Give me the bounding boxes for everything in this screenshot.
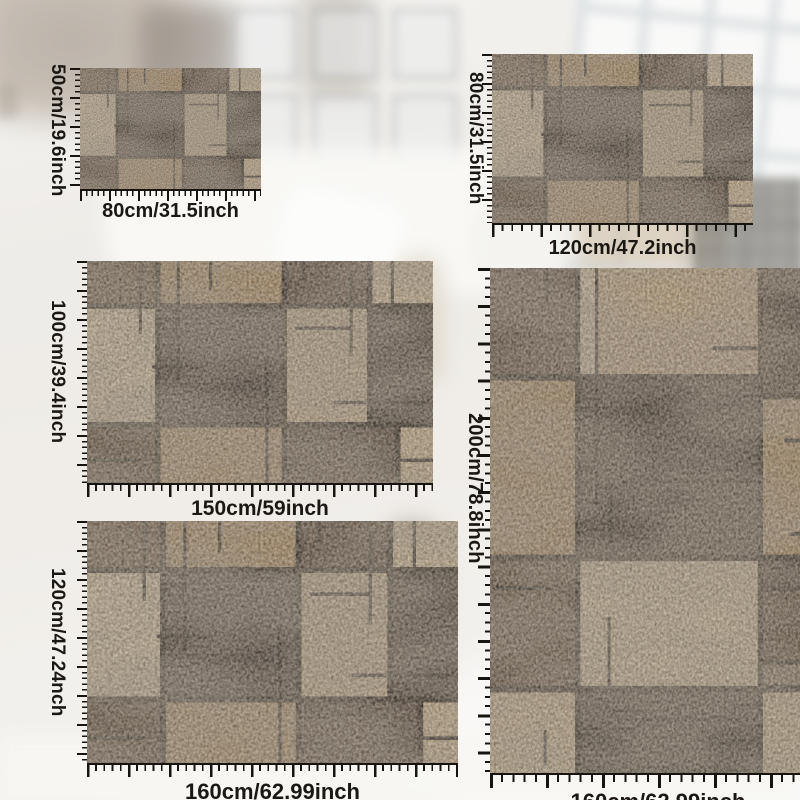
rug-figure-80x120: 80cm/31.5inch 120cm/47.2inch xyxy=(452,16,757,271)
rug-100x150-horizontal-ruler xyxy=(87,483,433,498)
rug-120x160-image xyxy=(87,521,458,763)
rug-120x160-height-label: 120cm/47.24nch xyxy=(42,521,68,763)
rug-200x160-image xyxy=(490,268,800,773)
rug-figure-120x160: 120cm/47.24nch 160cm/62.99inch xyxy=(40,521,465,800)
rug-200x160-width-label: 160cm/62.99inch xyxy=(490,789,800,800)
rug-80x120-width-label: 120cm/47.2inch xyxy=(492,237,753,260)
rug-50x80-width-label: 80cm/31.5inch xyxy=(80,200,261,223)
rug-figure-50x80: 50cm/19.6inch 80cm/31.5inch xyxy=(40,54,275,244)
rug-120x160-horizontal-ruler xyxy=(87,763,458,778)
rug-figure-200x160: 200cm/78.8inch 160cm/62.99inch xyxy=(445,268,800,800)
rug-100x150-width-label: 150cm/59inch xyxy=(87,497,433,521)
rug-100x150-image xyxy=(87,261,433,483)
rug-pattern-svg xyxy=(490,268,800,773)
rug-120x160-width-label: 160cm/62.99inch xyxy=(87,779,458,800)
rug-pattern-svg xyxy=(87,261,433,483)
rug-100x150-height-label: 100cm/39.4inch xyxy=(42,261,68,483)
rug-80x120-image xyxy=(492,54,753,223)
rug-80x120-horizontal-ruler xyxy=(492,223,753,237)
rug-figure-100x150: 100cm/39.4inch 150cm/59inch xyxy=(40,261,440,529)
rug-50x80-height-label: 50cm/19.6inch xyxy=(42,64,68,197)
rug-pattern-svg xyxy=(87,521,458,763)
rug-size-comparison-image: 50cm/19.6inch 80cm/31.5inch 80cm/31.5inc… xyxy=(0,0,800,800)
rug-200x160-horizontal-ruler xyxy=(490,773,800,789)
rug-pattern-svg xyxy=(492,54,753,223)
rug-pattern-svg xyxy=(80,68,261,189)
rug-50x80-image xyxy=(80,68,261,189)
